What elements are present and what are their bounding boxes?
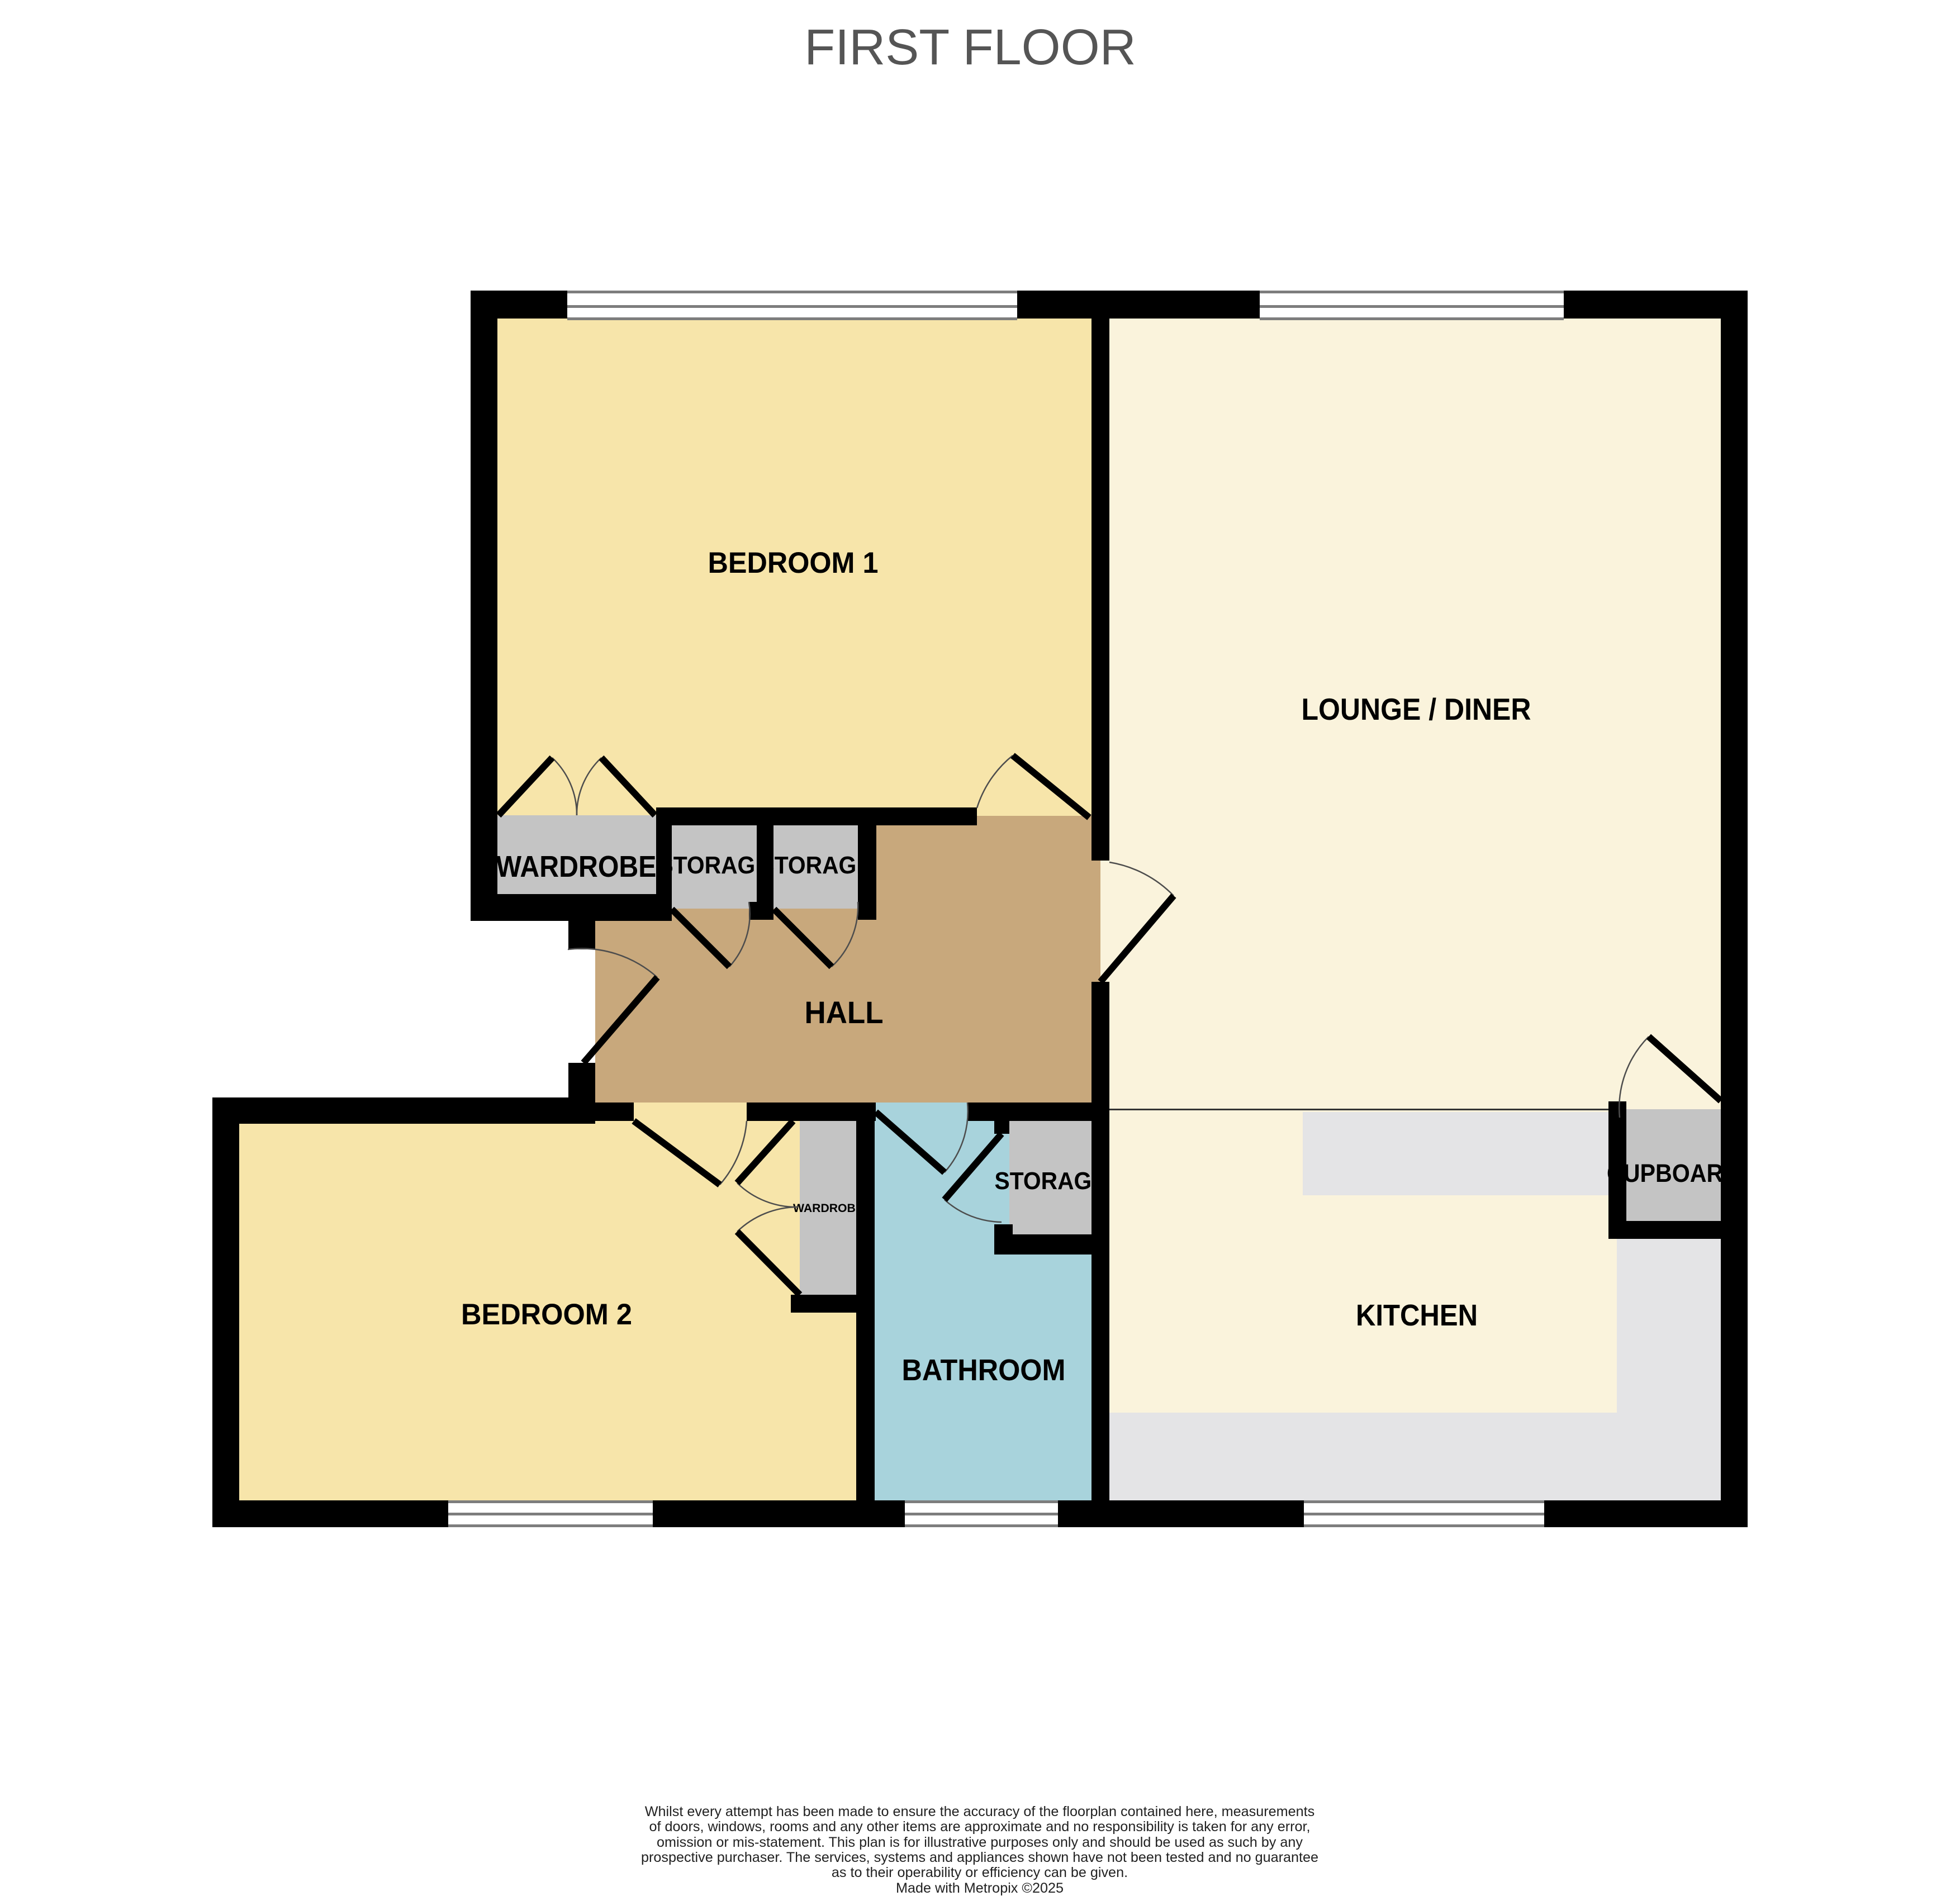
svg-text:STORAGE: STORAGE — [760, 852, 872, 879]
svg-text:omission or mis-statement. Thi: omission or mis-statement. This plan is … — [657, 1835, 1303, 1850]
svg-text:as to their operability or eff: as to their operability or efficiency ca… — [832, 1865, 1128, 1880]
svg-text:prospective purchaser. The ser: prospective purchaser. The services, sys… — [641, 1850, 1318, 1865]
svg-text:CUPBOARD: CUPBOARD — [1607, 1159, 1740, 1187]
svg-text:BEDROOM 1: BEDROOM 1 — [708, 547, 879, 579]
svg-text:WARDROBE: WARDROBE — [496, 850, 657, 883]
svg-text:LOUNGE / DINER: LOUNGE / DINER — [1302, 692, 1531, 726]
svg-text:WARDROBE: WARDROBE — [793, 1201, 863, 1215]
svg-text:Made with Metropix ©2025: Made with Metropix ©2025 — [896, 1880, 1064, 1896]
svg-text:of doors, windows, rooms and a: of doors, windows, rooms and any other i… — [649, 1819, 1310, 1835]
svg-text:KITCHEN: KITCHEN — [1356, 1299, 1478, 1332]
svg-text:HALL: HALL — [805, 995, 884, 1030]
svg-text:BATHROOM: BATHROOM — [902, 1353, 1066, 1387]
svg-text:BEDROOM 2: BEDROOM 2 — [461, 1298, 632, 1331]
svg-text:STORAGE: STORAGE — [658, 852, 771, 879]
svg-text:STORAGE: STORAGE — [995, 1167, 1107, 1195]
svg-text:FIRST FLOOR: FIRST FLOOR — [804, 20, 1136, 75]
svg-text:Whilst every attempt has been: Whilst every attempt has been made to en… — [645, 1804, 1314, 1819]
